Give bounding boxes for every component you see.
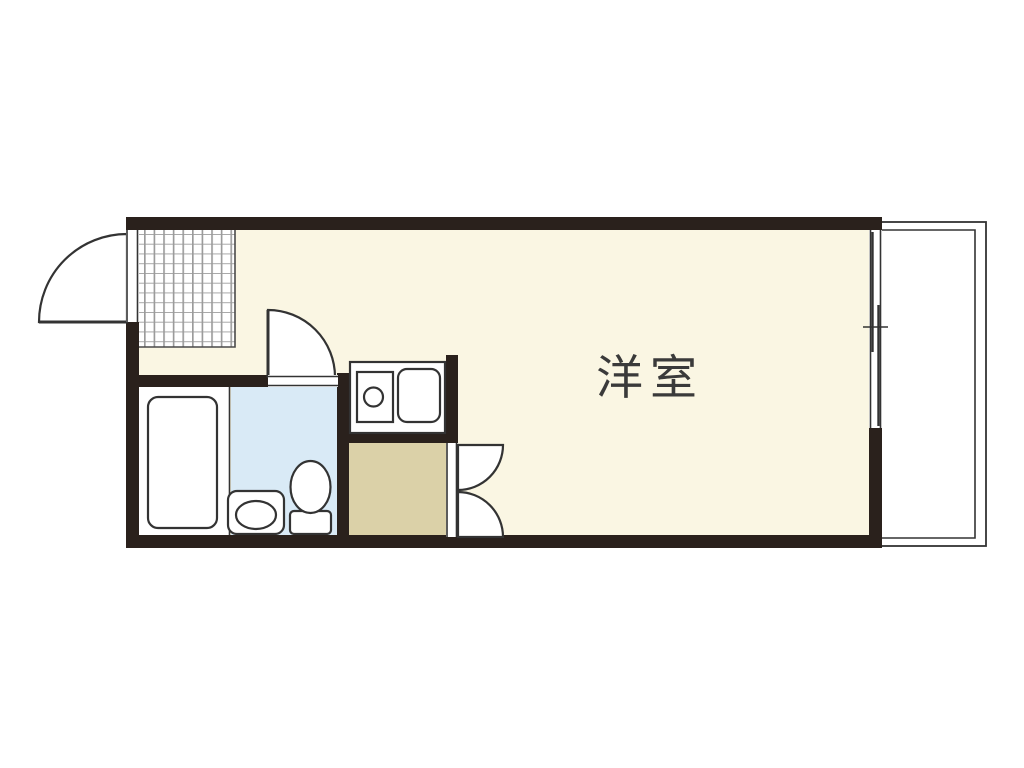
washroom-doorway (268, 375, 338, 387)
kitchen-sink-icon (398, 369, 440, 422)
toilet-tank-icon (290, 511, 331, 534)
wall-washroom-top (126, 375, 268, 387)
bathtub-icon (148, 397, 217, 528)
floor-plan: 洋室 (0, 0, 1024, 768)
wall-kitchen-closet-separator (337, 433, 458, 443)
wall-top (126, 217, 882, 230)
entrance-door-swing-arc (39, 234, 127, 322)
room-label: 洋室 (596, 351, 704, 404)
closet-floor (349, 443, 446, 535)
closet-doorway (446, 443, 458, 537)
washroom (228, 387, 337, 535)
wall-kitchen-right (446, 355, 458, 443)
floor-plan-drawing: 洋室 (0, 0, 1024, 768)
entrance-tile-grid (139, 230, 235, 347)
balcony (878, 222, 986, 546)
wall-right-lower (869, 428, 882, 548)
entrance-doorway (126, 230, 139, 322)
entrance-door (39, 230, 139, 322)
burner-icon (364, 388, 383, 407)
bath-room (139, 387, 230, 535)
entrance-tile-area (139, 230, 235, 347)
balcony-outline (878, 222, 986, 546)
vanity-basin-icon (236, 501, 276, 529)
kitchen-unit (350, 362, 445, 433)
toilet-bowl-icon (291, 461, 331, 513)
wall-left (126, 322, 139, 548)
wall-washroom-kitchen (337, 373, 349, 535)
